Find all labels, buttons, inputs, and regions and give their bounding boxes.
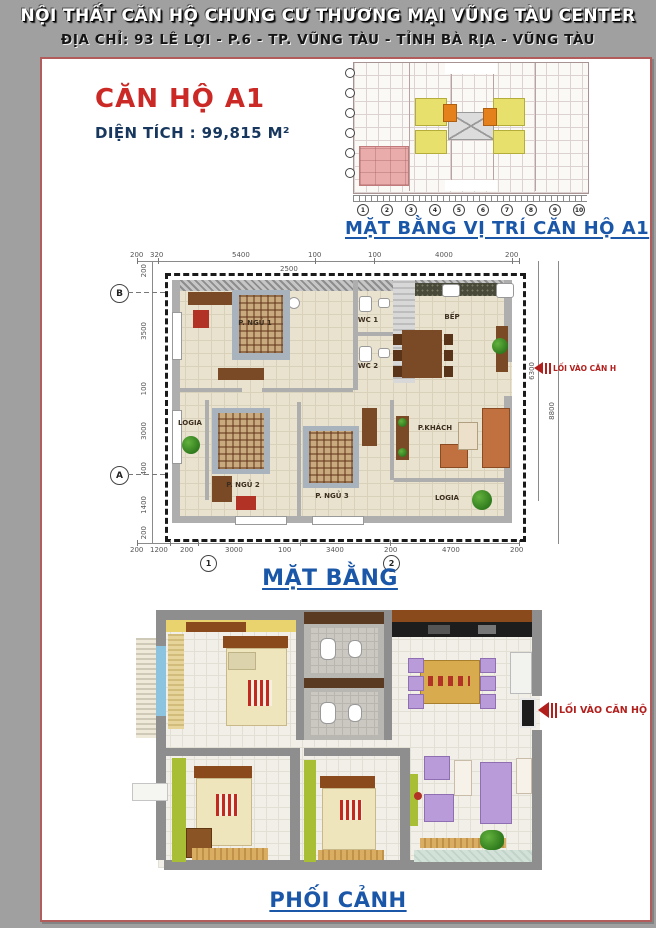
wall-art-panel [516, 758, 532, 794]
nightstand [212, 476, 232, 502]
dining-chair-render [480, 658, 496, 673]
wall-bedroom3-living [390, 400, 394, 480]
sink-render [348, 704, 362, 722]
entrance-arrow-icon [538, 702, 549, 718]
render-wall-mid [164, 748, 296, 756]
grid-row-circle [345, 128, 355, 138]
room-label-wc2: WC 2 [358, 362, 378, 370]
dining-chair-render [408, 658, 424, 673]
dimension-line-right [558, 261, 559, 544]
dim-value: 200 [505, 251, 518, 259]
apartment-name: CĂN HỘ A1 [95, 84, 265, 114]
grid-row-circle [345, 168, 355, 178]
perspective-caption: PHỐI CẢNH [128, 888, 548, 912]
column-marker: 2 [381, 204, 393, 216]
wall-art-frame [520, 698, 536, 728]
dim-value: 2500 [280, 265, 298, 273]
dining-chair-render [408, 676, 424, 691]
dim-value: 200 [130, 251, 143, 259]
entrance-bar-icon [551, 703, 553, 718]
wall-logia-bedroom2 [205, 400, 209, 500]
toilet [359, 296, 372, 312]
grid-row-circle [345, 88, 355, 98]
bedroom2-accent-wall [172, 758, 186, 862]
dim-value: 3500 [140, 322, 148, 340]
dim-value: 200 [510, 546, 523, 554]
bed3-red-blanket [340, 800, 362, 820]
tick [300, 540, 301, 546]
dim-value: 200 [180, 546, 193, 554]
kitchen-upper-cabinets [392, 610, 532, 622]
plant [492, 338, 508, 354]
dining-chair-render [480, 694, 496, 709]
dining-chair [444, 350, 453, 361]
window-blue [156, 646, 166, 716]
table-decor [428, 676, 470, 686]
unit-a1-highlight [359, 146, 409, 186]
tick [198, 540, 199, 546]
toilet [359, 346, 372, 362]
kitchen-cabinet-white [510, 652, 532, 694]
room-label-logia-left: LOGIA [178, 419, 202, 427]
render-wall-right-upper [532, 610, 542, 696]
dining-chair [393, 366, 402, 377]
courtyard-notch-bottom [445, 180, 497, 191]
bed-2 [218, 413, 264, 469]
unit-yellow [493, 98, 525, 126]
wardrobe [188, 292, 233, 305]
balcony-railing [136, 638, 156, 738]
wall-shelf [186, 622, 246, 632]
balcony-sill [132, 783, 168, 801]
stove-render [428, 625, 450, 634]
dimension-line-right [538, 261, 539, 501]
dim-value: 100 [308, 251, 321, 259]
render-wall-right-lower [532, 730, 542, 870]
toilet-render [320, 702, 336, 724]
plant [472, 490, 492, 510]
red-flower [414, 792, 422, 800]
page-title: NỘI THẤT CĂN HỘ CHUNG CƯ THƯƠNG MẠI VŨNG… [0, 6, 656, 26]
brochure-page: NỘI THẤT CĂN HỘ CHUNG CƯ THƯƠNG MẠI VŨNG… [0, 0, 656, 928]
unit-yellow [493, 130, 525, 154]
toilet-render [320, 638, 336, 660]
room-label-bedroom2: P. NGỦ 2 [226, 481, 260, 489]
curtain-blinds [168, 634, 184, 729]
bed3-headboard [320, 776, 375, 788]
render-wall-divider [400, 748, 410, 870]
dim-value: 200 [384, 546, 397, 554]
green-pillar [410, 774, 418, 826]
room-label-kitchen: BẾP [444, 313, 459, 321]
dim-value: 4700 [442, 546, 460, 554]
dining-chair-render [480, 676, 496, 691]
column-marker: 7 [501, 204, 513, 216]
window-left [172, 312, 182, 360]
column-marker: 6 [477, 204, 489, 216]
room-label-bedroom3: P. NGỦ 3 [315, 492, 349, 500]
dim-value: 3000 [140, 422, 148, 440]
sofa [482, 408, 510, 468]
dim-value: 3400 [326, 546, 344, 554]
column-marker: 4 [429, 204, 441, 216]
dining-chair-render [408, 694, 424, 709]
perspective-render [128, 598, 548, 886]
wing-divider [535, 63, 536, 191]
dining-chair [393, 334, 402, 345]
tick [170, 540, 171, 546]
dim-value: 200 [140, 264, 148, 277]
window-bottom [235, 516, 287, 525]
armchair-red [193, 310, 209, 328]
wall-bedroom2-bedroom3 [297, 402, 301, 516]
lilac-cube-seat [424, 794, 454, 822]
dim-value: 3000 [225, 546, 243, 554]
lilac-cube-seat [424, 756, 450, 780]
render-wall-divider [296, 610, 304, 740]
room-label-bedroom1: P. NGỦ 1 [238, 319, 272, 327]
dimension-line-bottom [137, 543, 520, 544]
dining-chair [444, 334, 453, 345]
wall-mid-left [180, 388, 242, 392]
apartment-area: DIỆN TÍCH : 99,815 M² [95, 124, 290, 142]
plant [398, 448, 407, 457]
unit-orange [443, 104, 457, 122]
grid-row-circle [345, 148, 355, 158]
column-marker: 8 [525, 204, 537, 216]
room-label-living: P.KHÁCH [418, 424, 452, 432]
entrance-bar-icon [545, 363, 547, 374]
dining-chair [444, 366, 453, 377]
column-marker: 10 [573, 204, 585, 216]
floor-plan-caption: MẶT BẰNG [100, 566, 560, 591]
wall-wc1-wc2 [353, 332, 393, 336]
location-plan: 1 2 3 4 5 6 7 8 9 10 MẶT BẰNG VỊ TRÍ CĂN… [345, 62, 595, 247]
bedroom3-accent-wall [304, 760, 316, 862]
grid-row-circle [345, 108, 355, 118]
column-marker: 9 [549, 204, 561, 216]
sink [378, 348, 390, 358]
bidet-render [348, 640, 362, 658]
plant-render [480, 830, 504, 850]
dim-value: 200 [130, 546, 143, 554]
entrance-marker-plan: LỐI VÀO CĂN H [534, 362, 616, 374]
dim-value: 100 [140, 382, 148, 395]
sink-counter [478, 625, 496, 634]
dining-chair [393, 350, 402, 361]
pillow [228, 652, 256, 670]
bed-3 [309, 431, 353, 483]
dimension-line-left [152, 261, 153, 544]
coffee-table [458, 422, 478, 450]
dim-value: 100 [368, 251, 381, 259]
wc-lintel [304, 678, 384, 688]
dim-value: 5400 [232, 251, 250, 259]
grid-line [128, 474, 166, 475]
dim-value: 100 [278, 546, 291, 554]
wing-divider [409, 63, 410, 191]
wall-mid-right [262, 388, 353, 392]
dim-value: 8800 [548, 402, 556, 420]
unit-yellow [415, 130, 447, 154]
entrance-label-plan: LỐI VÀO CĂN H [553, 364, 616, 373]
dimension-line-top [137, 261, 520, 262]
courtyard-notch-top [445, 63, 497, 74]
stove [442, 284, 460, 297]
balcony-glass [414, 850, 532, 862]
bed2-red-blanket [216, 794, 238, 816]
wall-living-logia [394, 478, 506, 482]
column-markers: 1 2 3 4 5 6 7 8 9 10 [357, 204, 585, 216]
bed1-red-blanket [248, 680, 272, 706]
dim-value: 4000 [435, 251, 453, 259]
render-wall-divider [384, 610, 392, 740]
sink [378, 298, 390, 308]
grid-row-circle [345, 68, 355, 78]
entrance-arrow-icon [534, 362, 543, 374]
entrance-bar-icon [555, 703, 557, 718]
dimension-ruler [353, 195, 587, 202]
bed1-headboard [223, 636, 288, 648]
bed2-headboard [194, 766, 252, 778]
unit-orange [483, 108, 497, 126]
render-wall-divider [290, 748, 300, 870]
entrance-label-render: LỐI VÀO CĂN HỘ [559, 705, 647, 716]
plant [182, 436, 200, 454]
location-plan-caption: MẶT BẰNG VỊ TRÍ CĂN HỘ A1 [345, 218, 595, 239]
dim-value: 1400 [140, 496, 148, 514]
wc-lintel [304, 612, 384, 624]
plant [398, 418, 407, 427]
column-marker: 3 [405, 204, 417, 216]
dining-table [402, 330, 442, 378]
grid-row-b: B [110, 284, 129, 303]
wood-mat [192, 848, 268, 860]
dim-value: 1200 [150, 546, 168, 554]
fridge [496, 283, 514, 298]
rug-red [236, 496, 256, 510]
column-marker: 5 [453, 204, 465, 216]
page-address: ĐỊA CHỈ: 93 LÊ LỢI - P.6 - TP. VŨNG TÀU … [0, 32, 656, 48]
render-wall-mid [304, 748, 408, 756]
grid-line [128, 292, 166, 293]
room-label-wc1: WC 1 [358, 316, 378, 324]
desk [362, 408, 377, 446]
window-bottom [312, 516, 364, 525]
grid-row-a: A [110, 466, 129, 485]
lilac-daybed [480, 762, 512, 824]
dim-value: 320 [150, 251, 163, 259]
room-label-logia-right: LOGIA [435, 494, 459, 502]
column-marker: 1 [357, 204, 369, 216]
dim-value: 200 [140, 526, 148, 539]
floor-plan: P. NGỦ 1 WC 1 WC 2 BẾP LOGIA P. NGỦ 2 P.… [100, 250, 575, 580]
tick [519, 258, 520, 264]
entrance-bar-icon [549, 363, 551, 374]
kitchen-counter-render [392, 622, 532, 637]
wall-art-panel [454, 760, 472, 796]
wood-mat [318, 850, 384, 860]
entrance-marker-render: LỐI VÀO CĂN HỘ [538, 702, 647, 718]
dresser [218, 368, 264, 380]
